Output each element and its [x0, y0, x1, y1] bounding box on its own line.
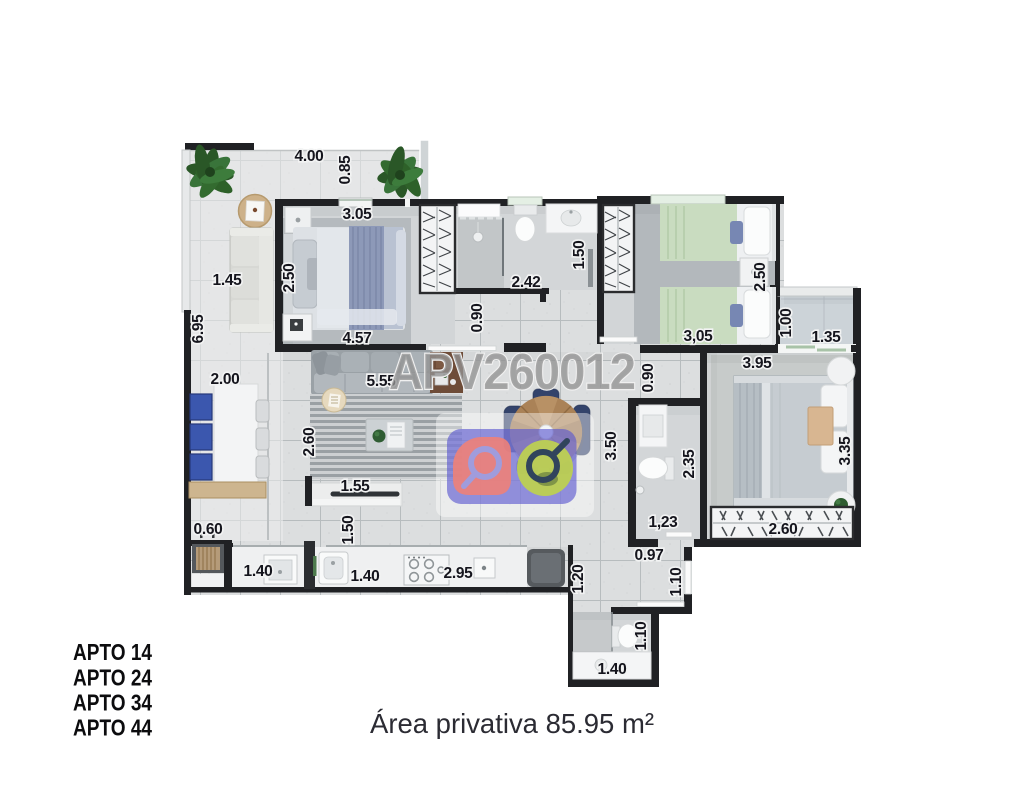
svg-text:6.95: 6.95	[190, 314, 207, 344]
svg-text:2.60: 2.60	[769, 521, 798, 538]
svg-text:2.50: 2.50	[281, 264, 298, 293]
svg-text:2.60: 2.60	[301, 428, 318, 457]
svg-text:1.40: 1.40	[351, 568, 380, 585]
svg-text:1.10: 1.10	[668, 568, 685, 597]
svg-text:2.95: 2.95	[444, 565, 474, 582]
svg-text:APTO 24: APTO 24	[73, 665, 152, 691]
svg-text:1.35: 1.35	[812, 329, 842, 346]
svg-text:1.20: 1.20	[570, 565, 587, 594]
svg-text:0.60: 0.60	[194, 521, 223, 538]
svg-text:1.40: 1.40	[244, 563, 273, 580]
svg-text:2.35: 2.35	[681, 449, 698, 479]
svg-text:2.42: 2.42	[512, 274, 541, 291]
svg-text:2.00: 2.00	[211, 371, 240, 388]
svg-text:0.90: 0.90	[469, 304, 486, 333]
svg-text:APTO 44: APTO 44	[73, 715, 152, 741]
svg-text:3.05: 3.05	[343, 206, 373, 223]
svg-text:1,23: 1,23	[649, 514, 679, 531]
svg-text:APTO 34: APTO 34	[73, 690, 152, 716]
svg-text:0.85: 0.85	[337, 155, 354, 185]
svg-text:1.40: 1.40	[598, 661, 627, 678]
svg-text:0.90: 0.90	[640, 364, 657, 393]
svg-text:1.50: 1.50	[340, 516, 357, 545]
svg-text:1.55: 1.55	[341, 478, 371, 495]
svg-text:Área privativa 85.95 m²: Área privativa 85.95 m²	[370, 708, 654, 739]
svg-text:1.00: 1.00	[778, 309, 795, 338]
svg-text:1.10: 1.10	[633, 622, 650, 651]
svg-text:4.57: 4.57	[343, 330, 372, 347]
svg-text:4.00: 4.00	[295, 148, 324, 165]
svg-text:1.45: 1.45	[213, 272, 243, 289]
svg-text:APTO 14: APTO 14	[73, 639, 152, 665]
svg-text:2.50: 2.50	[752, 263, 769, 292]
svg-text:3,05: 3,05	[684, 328, 714, 345]
svg-text:APV260012: APV260012	[389, 343, 635, 400]
svg-text:3.35: 3.35	[837, 436, 854, 466]
svg-text:3.50: 3.50	[603, 432, 620, 461]
svg-text:1.50: 1.50	[571, 241, 588, 270]
svg-text:0.97: 0.97	[635, 547, 664, 564]
svg-text:3.95: 3.95	[743, 355, 773, 372]
